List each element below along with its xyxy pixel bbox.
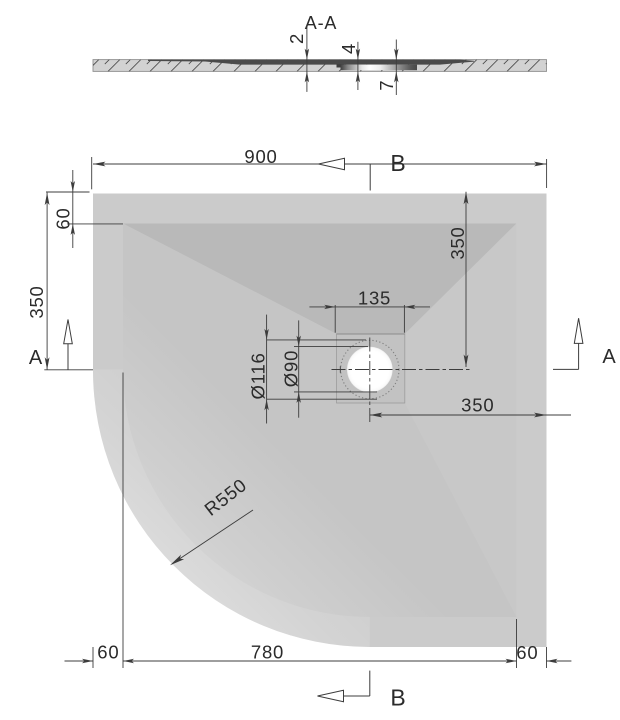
svg-text:Ø90: Ø90	[281, 350, 302, 387]
svg-text:Ø116: Ø116	[248, 352, 269, 399]
svg-text:7: 7	[376, 80, 397, 91]
svg-text:B: B	[390, 685, 406, 711]
svg-text:A-A: A-A	[305, 13, 337, 33]
svg-text:60: 60	[516, 642, 538, 663]
svg-text:135: 135	[358, 287, 391, 308]
svg-text:350: 350	[461, 394, 494, 415]
svg-text:B: B	[390, 150, 406, 176]
svg-text:A: A	[602, 346, 616, 368]
svg-text:60: 60	[53, 207, 74, 229]
svg-text:350: 350	[447, 226, 468, 259]
svg-text:60: 60	[97, 641, 119, 662]
svg-text:900: 900	[244, 146, 277, 167]
svg-text:4: 4	[338, 43, 359, 54]
svg-text:2: 2	[286, 33, 307, 44]
svg-text:A: A	[29, 347, 43, 369]
svg-text:780: 780	[251, 642, 284, 663]
svg-text:350: 350	[26, 285, 47, 318]
